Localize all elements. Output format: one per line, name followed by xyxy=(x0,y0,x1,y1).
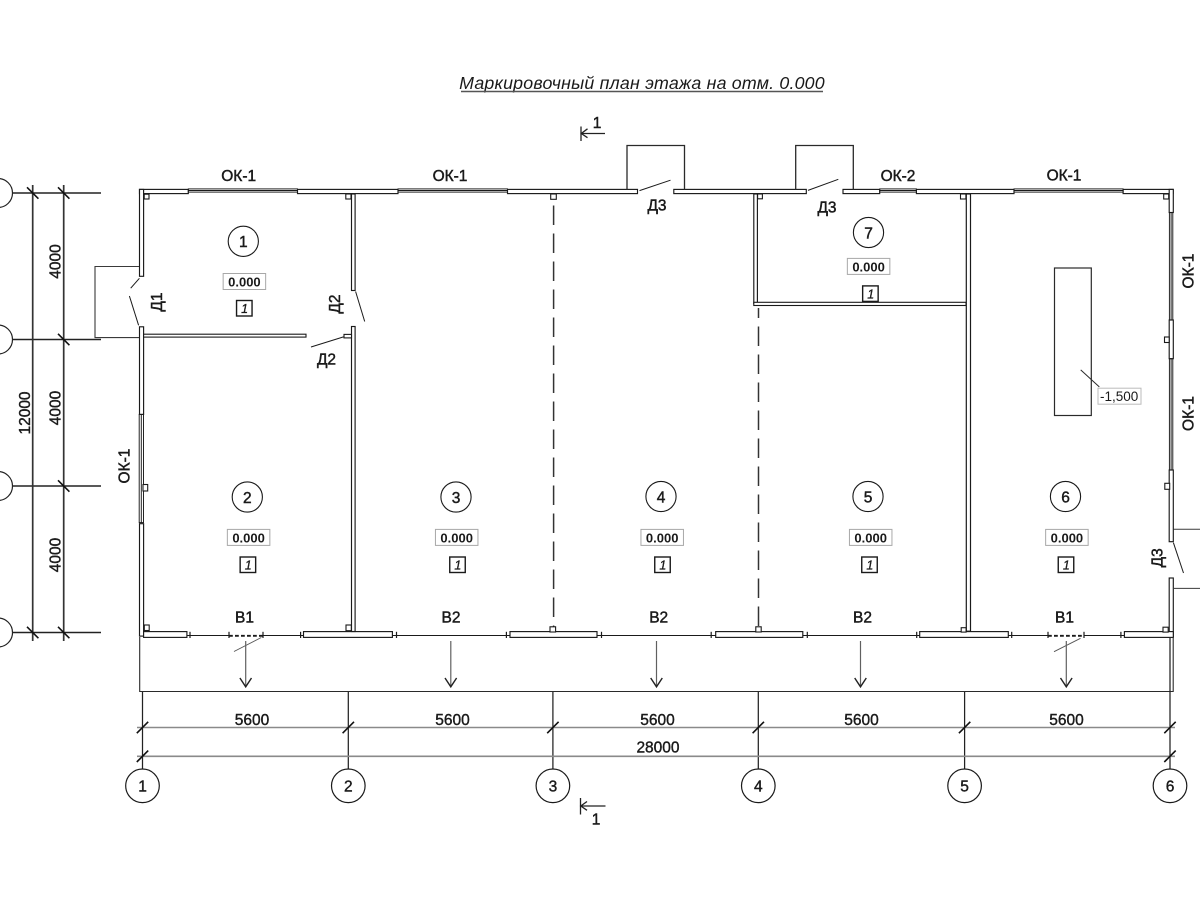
svg-text:Д1: Д1 xyxy=(149,292,166,311)
svg-text:0.000: 0.000 xyxy=(1051,530,1084,545)
svg-text:1: 1 xyxy=(593,115,602,132)
svg-text:0.000: 0.000 xyxy=(232,530,265,545)
svg-text:0.000: 0.000 xyxy=(440,530,473,545)
svg-text:7: 7 xyxy=(864,225,873,242)
svg-text:5600: 5600 xyxy=(844,712,879,729)
svg-text:1: 1 xyxy=(241,302,248,316)
svg-text:ОК-1: ОК-1 xyxy=(433,168,468,185)
svg-text:1: 1 xyxy=(454,558,461,572)
svg-text:1: 1 xyxy=(239,234,248,251)
svg-text:1: 1 xyxy=(592,812,601,829)
svg-text:4: 4 xyxy=(754,779,763,796)
svg-text:4: 4 xyxy=(657,489,666,506)
svg-text:В1: В1 xyxy=(1055,610,1074,627)
svg-text:Д3: Д3 xyxy=(817,199,836,216)
svg-text:Маркировочный план этажа на от: Маркировочный план этажа на отм. 0.000 xyxy=(459,73,825,93)
svg-text:ОК-1: ОК-1 xyxy=(1047,168,1082,185)
svg-text:1: 1 xyxy=(866,558,873,572)
svg-text:В1: В1 xyxy=(235,610,254,627)
svg-text:Д2: Д2 xyxy=(327,294,344,313)
svg-text:ОК-2: ОК-2 xyxy=(881,168,916,185)
svg-text:3: 3 xyxy=(452,490,461,507)
svg-text:1: 1 xyxy=(138,779,147,796)
svg-text:0.000: 0.000 xyxy=(852,259,885,274)
svg-text:5600: 5600 xyxy=(435,712,470,729)
svg-text:4000: 4000 xyxy=(48,390,65,425)
svg-text:1: 1 xyxy=(659,558,666,572)
svg-text:ОК-1: ОК-1 xyxy=(1180,254,1197,289)
svg-text:В2: В2 xyxy=(649,610,668,627)
svg-text:5600: 5600 xyxy=(1049,712,1084,729)
svg-text:3: 3 xyxy=(549,779,558,796)
svg-text:5: 5 xyxy=(864,489,873,506)
svg-text:28000: 28000 xyxy=(636,740,679,757)
svg-text:2: 2 xyxy=(344,779,353,796)
svg-text:Д3: Д3 xyxy=(1150,548,1167,567)
svg-text:В2: В2 xyxy=(853,610,872,627)
svg-text:ОК-1: ОК-1 xyxy=(221,168,256,185)
svg-text:12000: 12000 xyxy=(17,391,34,434)
svg-text:Д3: Д3 xyxy=(647,197,666,214)
svg-text:1: 1 xyxy=(867,287,874,301)
svg-text:2: 2 xyxy=(243,490,252,507)
svg-text:В2: В2 xyxy=(442,610,461,627)
svg-text:4000: 4000 xyxy=(48,244,65,279)
svg-text:4000: 4000 xyxy=(48,537,65,572)
svg-text:0.000: 0.000 xyxy=(854,530,887,545)
svg-text:6: 6 xyxy=(1061,489,1070,506)
svg-text:5: 5 xyxy=(960,779,969,796)
svg-text:-1,500: -1,500 xyxy=(1100,389,1138,404)
svg-text:1: 1 xyxy=(245,558,252,572)
svg-text:6: 6 xyxy=(1166,779,1175,796)
svg-text:1: 1 xyxy=(1063,558,1070,572)
svg-text:ОК-1: ОК-1 xyxy=(1180,396,1197,431)
svg-text:0.000: 0.000 xyxy=(646,530,679,545)
svg-text:5600: 5600 xyxy=(640,712,675,729)
svg-text:Д2: Д2 xyxy=(317,352,336,369)
svg-text:0.000: 0.000 xyxy=(228,275,261,290)
svg-text:5600: 5600 xyxy=(235,712,270,729)
svg-text:ОК-1: ОК-1 xyxy=(117,449,134,484)
